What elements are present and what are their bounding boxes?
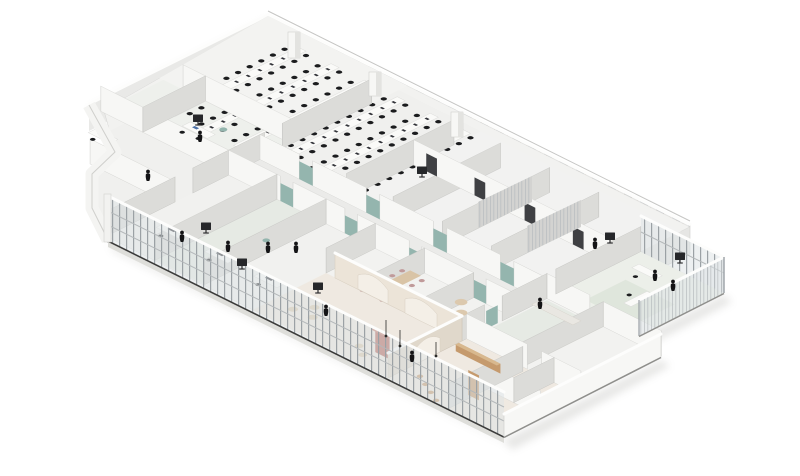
floorplan-svg (0, 0, 800, 476)
facade-corner-post (104, 194, 111, 242)
axonometric-floorplan-rendering (0, 0, 800, 476)
